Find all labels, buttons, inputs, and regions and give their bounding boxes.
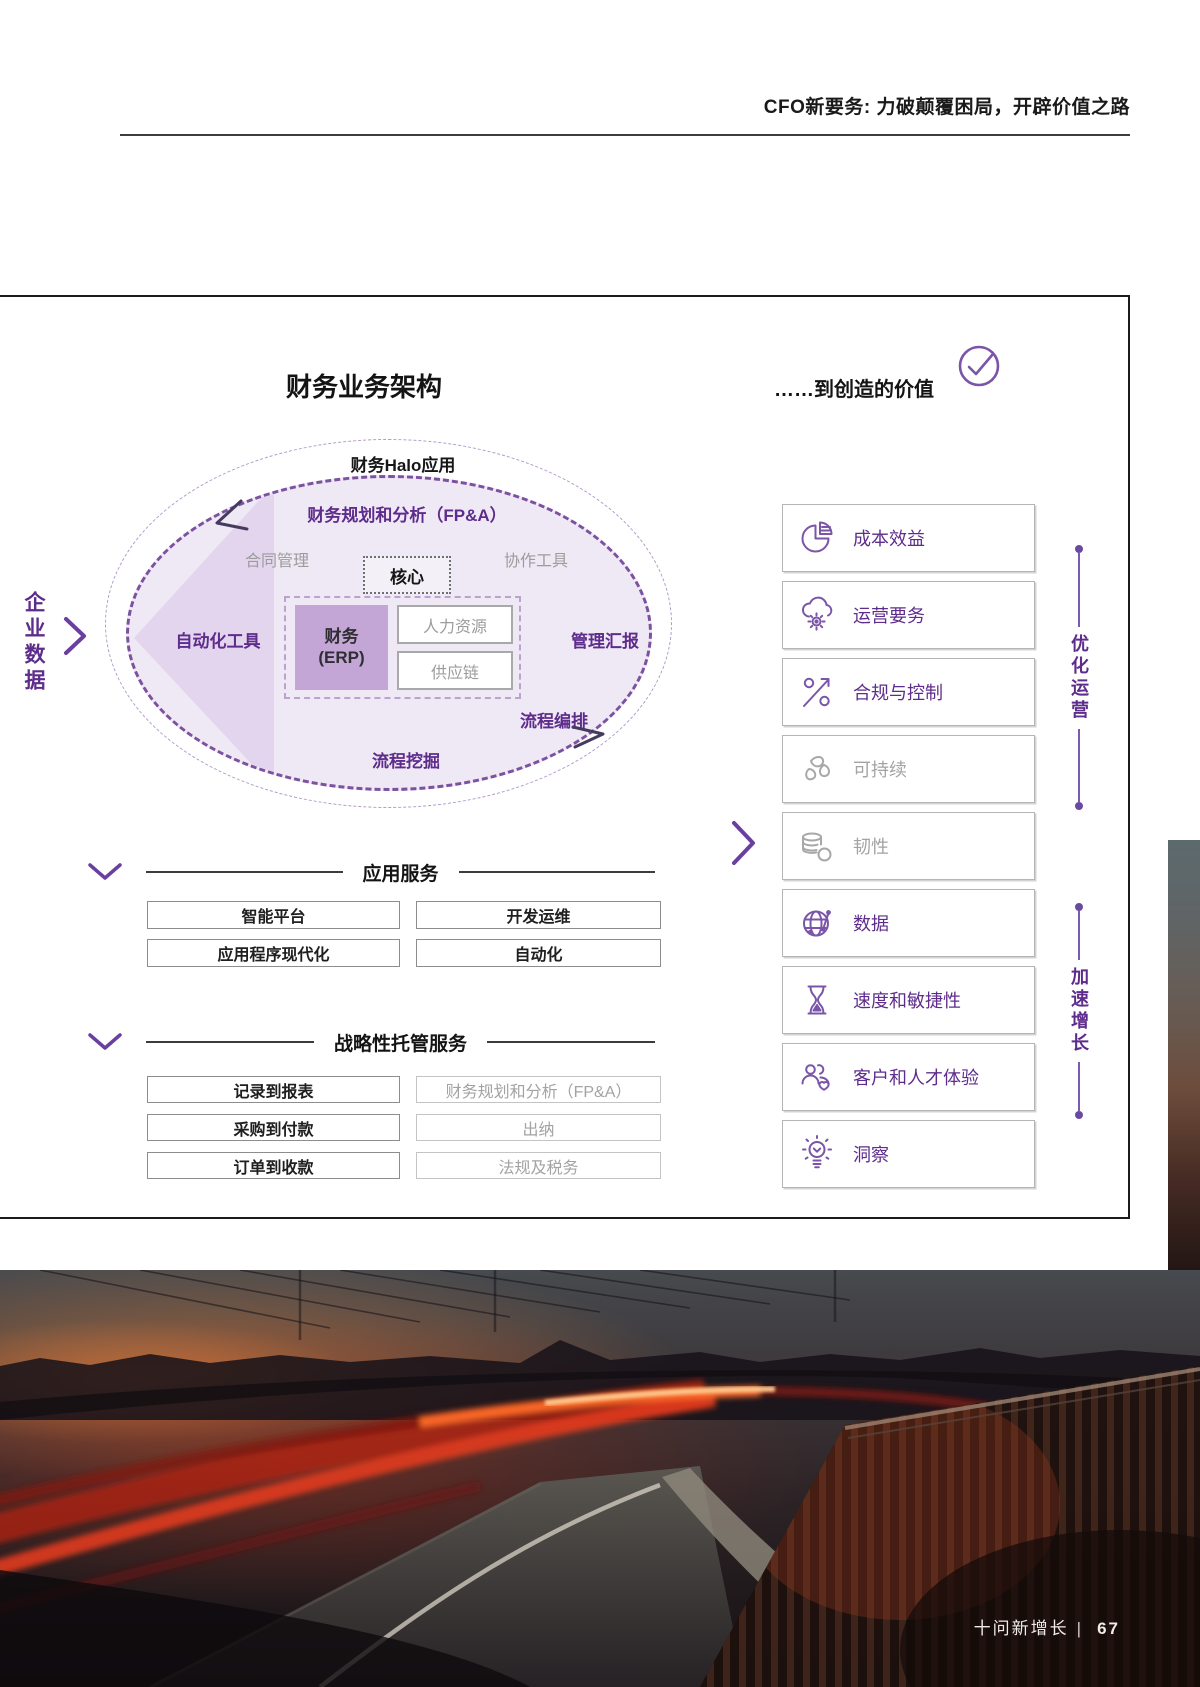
page-footer: 十问新增长|67 [974,1614,1120,1639]
value-box-operations: 运营要务 [782,581,1035,649]
footer-page-number: 67 [1097,1619,1120,1638]
cycle-arrow-left-icon [205,489,265,539]
rail-dot [1075,802,1083,810]
rail-accelerate-growth: 加速增长 [1062,903,1096,1119]
service-box: 自动化 [416,939,661,967]
people-heart-icon [797,1057,837,1097]
finance-halo-ellipse: 财务Halo应用 财务规划和分析（FP&A） 合同管理 核心 协作工具 自动化工… [105,439,672,808]
app-services-header: 应用服务 [88,857,655,887]
chevron-down-icon [88,863,122,881]
chevron-right-icon [62,615,90,662]
core-systems-group: 财务 (ERP) 人力资源 供应链 [284,596,521,699]
value-label: 数据 [853,910,889,936]
header-line [146,871,343,873]
value-list: 成本效益 运营要务 合规与控制 可持续 韧性 [782,504,1035,1188]
service-box: 开发运维 [416,901,661,929]
value-box-insight: 洞察 [782,1120,1035,1188]
lightbulb-icon [797,1134,837,1174]
value-label: 速度和敏捷性 [853,987,961,1013]
fpa-label: 财务规划和分析（FP&A） [307,501,506,526]
value-box-compliance: 合规与控制 [782,658,1035,726]
value-box-experience: 客户和人才体验 [782,1043,1035,1111]
header-line [459,871,656,873]
value-box-sustainability: 可持续 [782,735,1035,803]
hourglass-icon [797,980,837,1020]
leaves-icon [797,749,837,789]
pie-chart-icon [797,518,837,558]
supply-chain-box: 供应链 [397,651,513,690]
halo-apps-label: 财务Halo应用 [351,451,456,476]
value-label: 韧性 [853,833,889,859]
cloud-gear-icon [797,595,837,635]
cycle-arrow-right-icon [565,721,615,761]
chevron-down-icon [88,1033,122,1051]
core-box: 核心 [363,556,451,594]
value-label: 客户和人才体验 [853,1064,979,1090]
globe-network-icon [797,903,837,943]
managed-services-header: 战略性托管服务 [88,1027,655,1057]
value-box-data: 数据 [782,889,1035,957]
footer-book-title: 十问新增长 [974,1619,1069,1638]
value-label: 成本效益 [853,525,925,551]
managed-services-grid: 记录到报表 财务规划和分析（FP&A） 采购到付款 出纳 订单到收款 法规及税务 [147,1076,661,1179]
value-label: 洞察 [853,1141,889,1167]
hr-box: 人力资源 [397,605,513,644]
value-label: 运营要务 [853,602,925,628]
service-box: 记录到报表 [147,1076,400,1103]
value-box-cost: 成本效益 [782,504,1035,572]
rail-line [1078,553,1081,627]
rail-dot [1075,903,1083,911]
service-box: 智能平台 [147,901,400,929]
header-line [146,1041,314,1043]
service-box: 订单到收款 [147,1152,400,1179]
header-divider [120,134,1130,136]
erp-label-line2: (ERP) [318,648,364,668]
service-box: 采购到付款 [147,1114,400,1141]
footer-separator: | [1077,1619,1083,1638]
service-box: 出纳 [416,1114,661,1141]
rail-label: 优化运营 [1066,634,1092,722]
finance-architecture-diagram: 财务业务架构 ……到创造的价值 企业数据 财务Halo应用 财务规划和分析（FP… [0,295,1130,1219]
database-icon [797,826,837,866]
rail-dot [1075,1111,1083,1119]
rail-line [1078,911,1081,960]
rail-optimize-operations: 优化运营 [1062,545,1096,810]
value-box-resilience: 韧性 [782,812,1035,880]
finance-erp-box: 财务 (ERP) [295,605,388,690]
erp-label-line1: 财务 [325,627,359,647]
service-box: 应用程序现代化 [147,939,400,967]
app-services-title: 应用服务 [343,859,459,886]
managed-services-title: 战略性托管服务 [314,1029,487,1056]
page-edge-photo [1168,840,1200,1270]
page: CFO新要务: 力破颠覆困局，开辟价值之路 财务业务架构 ……到创造的价值 企业… [0,0,1200,1687]
value-label: 合规与控制 [853,679,943,705]
value-created-title: ……到创造的价值 [774,373,934,402]
mgmt-reporting-label: 管理汇报 [571,627,639,652]
rail-dot [1075,545,1083,553]
service-box: 财务规划和分析（FP&A） [416,1076,661,1103]
page-header-title: CFO新要务: 力破颠覆困局，开辟价值之路 [764,92,1130,119]
rail-label: 加速增长 [1066,967,1092,1055]
value-label: 可持续 [853,756,907,782]
app-services-grid: 智能平台 开发运维 应用程序现代化 自动化 [147,901,661,967]
enterprise-data-label: 企业数据 [18,591,48,695]
contract-mgmt-label: 合同管理 [245,547,309,571]
percent-arrow-icon [797,672,837,712]
diagram-title: 财务业务架构 [286,367,442,404]
bridge-photo: 十问新增长|67 [0,1270,1200,1687]
rail-line [1078,729,1081,803]
collab-tools-label: 协作工具 [504,547,568,571]
automation-tools-label: 自动化工具 [176,627,261,652]
check-circle-icon [956,343,1002,389]
header-line [487,1041,655,1043]
process-mining-label: 流程挖掘 [372,747,440,772]
value-box-speed: 速度和敏捷性 [782,966,1035,1034]
rail-line [1078,1062,1081,1111]
service-box: 法规及税务 [416,1152,661,1179]
core-label: 核心 [390,563,424,588]
chevron-right-icon [729,818,759,873]
